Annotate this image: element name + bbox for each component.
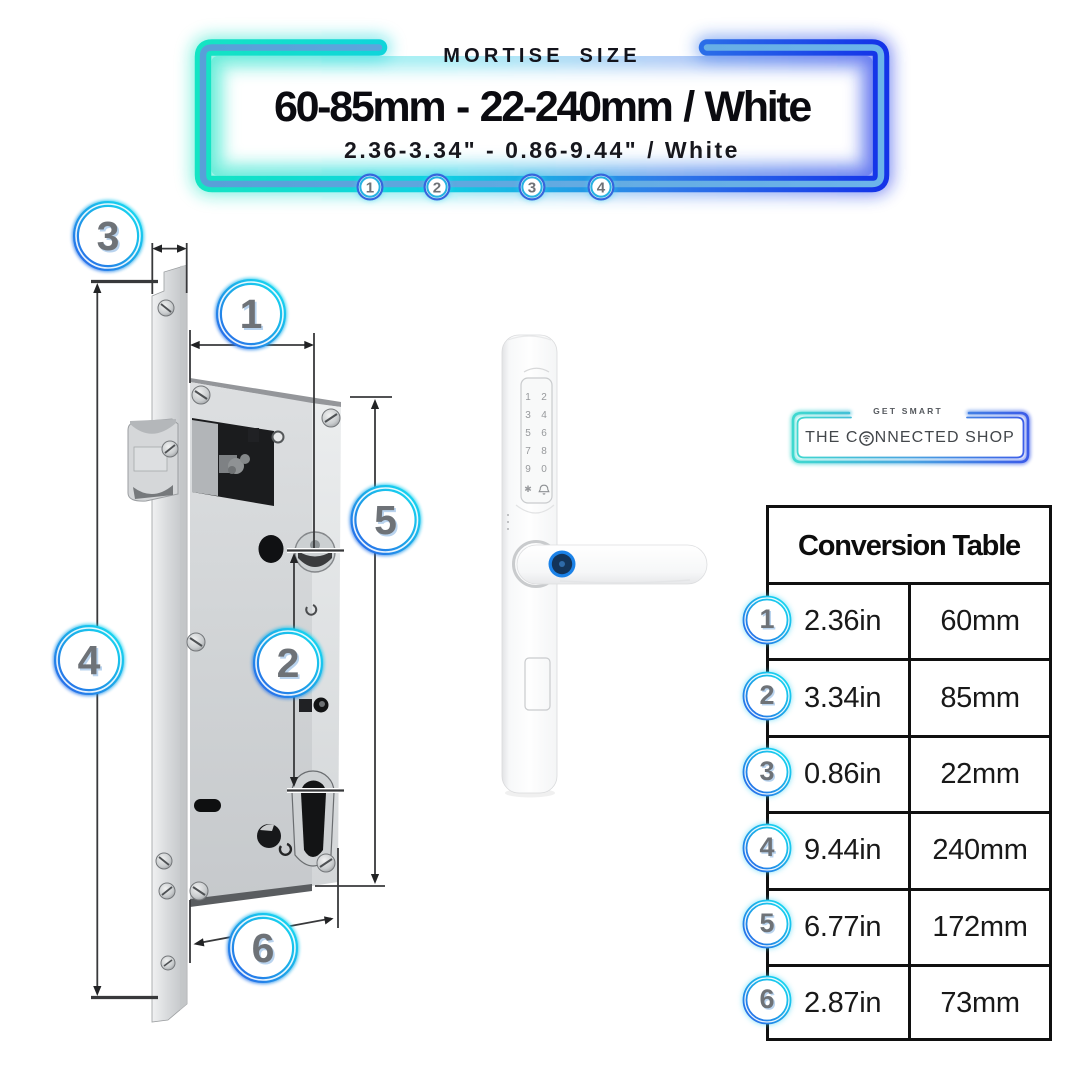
svg-text:1: 1 <box>525 392 531 403</box>
svg-text:2: 2 <box>277 640 300 686</box>
svg-text:6: 6 <box>252 925 275 971</box>
svg-text:4: 4 <box>597 179 606 196</box>
svg-text:0: 0 <box>541 464 547 475</box>
svg-text:6: 6 <box>541 428 547 439</box>
svg-text:9: 9 <box>525 464 531 475</box>
svg-text:4: 4 <box>78 637 101 683</box>
svg-text:2: 2 <box>759 680 774 710</box>
svg-text:8: 8 <box>541 446 547 457</box>
svg-text:3: 3 <box>97 213 120 259</box>
svg-text:5: 5 <box>374 497 397 543</box>
svg-text:3: 3 <box>528 179 536 196</box>
svg-text:3: 3 <box>759 756 774 786</box>
svg-text:5: 5 <box>759 908 774 938</box>
svg-text:7: 7 <box>525 446 531 457</box>
svg-text:2: 2 <box>541 392 547 403</box>
svg-text:1: 1 <box>240 291 263 337</box>
svg-text:5: 5 <box>525 428 531 439</box>
svg-text:✱: ✱ <box>524 484 532 494</box>
svg-text:4: 4 <box>759 832 774 862</box>
svg-text:1: 1 <box>759 604 774 634</box>
svg-text:6: 6 <box>759 984 774 1014</box>
svg-text:4: 4 <box>541 410 547 421</box>
svg-text:3: 3 <box>525 410 531 421</box>
